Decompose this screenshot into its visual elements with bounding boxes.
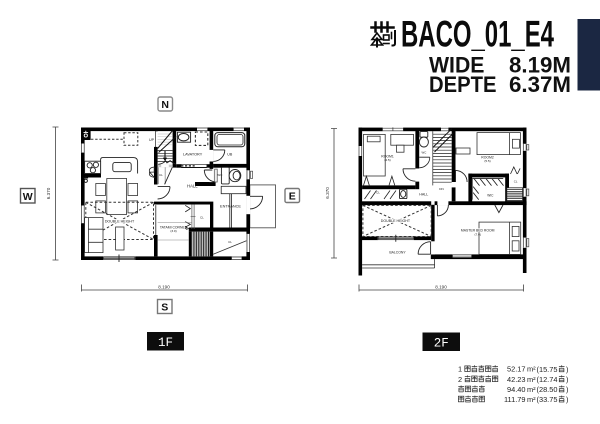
svg-text:DEPTE: DEPTE (429, 72, 497, 97)
svg-text:(4.5): (4.5) (384, 158, 390, 162)
svg-text:2F: 2F (434, 337, 449, 351)
svg-text:6.37M: 6.37M (509, 72, 571, 97)
svg-text:(3.0): (3.0) (170, 229, 176, 233)
svg-text:): ) (566, 395, 568, 404)
svg-text:): ) (566, 365, 568, 374)
svg-text:8.190: 8.190 (435, 285, 447, 290)
svg-text:CL: CL (376, 190, 380, 194)
svg-text:HALL: HALL (419, 192, 428, 196)
svg-text:42.23: 42.23 (507, 375, 526, 384)
svg-text:8.190: 8.190 (158, 285, 170, 290)
svg-text:): ) (566, 375, 568, 384)
svg-text:DOUBLE HEIGHT: DOUBLE HEIGHT (105, 220, 135, 224)
svg-text:BALCONY: BALCONY (389, 250, 406, 254)
svg-text:6.370: 6.370 (46, 187, 51, 199)
svg-text:DN: DN (439, 187, 443, 191)
svg-text:N: N (161, 99, 169, 111)
svg-text:S: S (161, 302, 168, 314)
svg-text:): ) (566, 385, 568, 394)
svg-text:2: 2 (458, 375, 462, 384)
svg-text:CL: CL (200, 215, 204, 219)
svg-text:(33.75: (33.75 (537, 395, 558, 404)
svg-text:WIC: WIC (487, 193, 494, 197)
svg-text:W: W (23, 191, 33, 203)
svg-text:ENTRANCE: ENTRANCE (220, 205, 241, 209)
svg-text:UB: UB (227, 153, 233, 157)
svg-text:E: E (289, 191, 296, 203)
svg-text:1: 1 (458, 365, 462, 374)
svg-text:m²: m² (527, 375, 536, 384)
svg-text:DOUBLE HEIGHT: DOUBLE HEIGHT (381, 219, 411, 223)
svg-text:CL: CL (228, 240, 232, 244)
svg-text:HALL: HALL (187, 184, 198, 189)
svg-text:UP: UP (149, 138, 155, 142)
svg-text:(28.50: (28.50 (537, 385, 558, 394)
svg-text:111.79: 111.79 (504, 395, 526, 404)
svg-text:CL: CL (514, 179, 518, 183)
svg-text:LAVATORY: LAVATORY (183, 152, 203, 156)
svg-text:m²: m² (527, 365, 536, 374)
svg-text:1F: 1F (158, 336, 173, 350)
svg-text:94.40: 94.40 (507, 385, 526, 394)
svg-text:m²: m² (527, 385, 536, 394)
svg-text:52.17: 52.17 (507, 365, 526, 374)
svg-text:(15.75: (15.75 (537, 365, 558, 374)
svg-text:CL: CL (159, 173, 163, 177)
svg-text:(7.0): (7.0) (475, 232, 481, 236)
svg-text:(12.74: (12.74 (537, 375, 558, 384)
svg-text:WC: WC (421, 151, 426, 155)
svg-text:BACO_01_E4: BACO_01_E4 (401, 14, 554, 55)
svg-text:WC: WC (217, 173, 223, 177)
svg-text:m²: m² (527, 395, 536, 404)
svg-text:6.370: 6.370 (325, 187, 330, 199)
svg-text:(5.5): (5.5) (484, 159, 490, 163)
